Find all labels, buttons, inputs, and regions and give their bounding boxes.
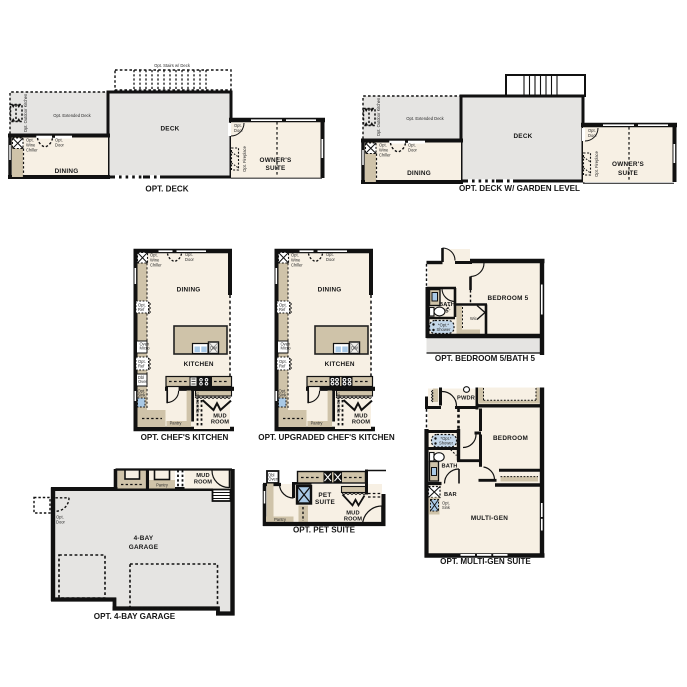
svg-text:Shower: Shower [439,441,454,446]
svg-text:Chiller: Chiller [150,263,162,268]
svg-text:Shower: Shower [437,327,452,332]
svg-text:Ref: Ref [138,364,145,369]
svg-text:Opt. Extended Deck: Opt. Extended Deck [53,113,91,118]
svg-text:KITCHEN: KITCHEN [325,361,355,368]
svg-text:OPT. DECK: OPT. DECK [145,184,188,193]
svg-text:BATH: BATH [442,464,458,470]
svg-text:Chiller: Chiller [26,148,38,153]
svg-text:Opt. Bench: Opt. Bench [336,392,341,413]
svg-text:OWNER'S: OWNER'S [612,161,645,168]
svg-text:ROOM: ROOM [352,419,370,425]
svg-text:DINING: DINING [55,168,79,175]
svg-text:MULTI-GEN: MULTI-GEN [471,515,508,522]
svg-text:Opt. Extended Deck: Opt. Extended Deck [406,116,444,121]
svg-text:DW: DW [351,346,358,351]
svg-text:GARAGE: GARAGE [129,544,159,551]
svg-text:Door: Door [588,133,598,138]
svg-text:MUD: MUD [196,473,209,479]
svg-text:OPT. PET SUITE: OPT. PET SUITE [293,526,356,535]
svg-text:OPT. CHEF'S KITCHEN: OPT. CHEF'S KITCHEN [141,433,229,442]
svg-text:Door: Door [185,257,195,262]
svg-text:DECK: DECK [513,133,532,140]
svg-text:Sink: Sink [279,393,288,398]
svg-text:Sink: Sink [138,393,147,398]
svg-text:OPT. UPGRADED CHEF'S KITCHEN: OPT. UPGRADED CHEF'S KITCHEN [258,433,395,442]
svg-text:BAR: BAR [444,492,457,498]
svg-text:Micro: Micro [281,346,292,351]
svg-text:DINING: DINING [318,287,342,294]
svg-text:Pantry: Pantry [274,517,287,522]
svg-text:SUITE: SUITE [618,170,639,177]
svg-text:BEDROOM 5: BEDROOM 5 [488,295,529,302]
svg-text:Pantry: Pantry [311,420,324,425]
svg-text:SUITE: SUITE [315,499,336,506]
svg-text:Opt. Fireplace: Opt. Fireplace [242,145,247,171]
svg-text:BEDROOM: BEDROOM [493,435,528,442]
svg-text:Oven: Oven [268,476,279,481]
svg-text:ROOM: ROOM [194,480,212,486]
svg-text:Door: Door [234,128,244,133]
svg-text:DECK: DECK [160,126,179,133]
svg-text:OPT. BEDROOM 5/BATH 5: OPT. BEDROOM 5/BATH 5 [435,354,536,363]
svg-text:SUITE: SUITE [265,165,286,172]
svg-text:Door: Door [408,148,418,153]
svg-text:Sink: Sink [442,505,451,510]
svg-text:OWNER'S: OWNER'S [259,157,292,164]
svg-text:Pantry: Pantry [170,420,183,425]
svg-text:Ref: Ref [138,307,145,312]
svg-text:Chiller: Chiller [379,153,391,158]
svg-text:5: 5 [445,309,448,315]
svg-text:Opt. Stairs w/ Deck: Opt. Stairs w/ Deck [154,63,191,68]
svg-text:ROOM: ROOM [344,517,362,523]
svg-text:Opt. Outdoor Kitchen: Opt. Outdoor Kitchen [376,97,381,136]
svg-text:Ref: Ref [279,364,286,369]
svg-text:DINING: DINING [177,287,201,294]
svg-text:KITCHEN: KITCHEN [184,361,214,368]
svg-text:DINING: DINING [407,170,431,177]
svg-text:Oven: Oven [138,379,149,384]
svg-text:ROOM: ROOM [211,419,229,425]
svg-text:OPT. 4-BAY GARAGE: OPT. 4-BAY GARAGE [94,612,176,621]
svg-text:PWDR: PWDR [457,396,475,402]
svg-text:Chiller: Chiller [291,263,303,268]
svg-text:Pantry: Pantry [156,483,169,488]
svg-text:Door: Door [55,143,65,148]
svg-text:Ref: Ref [279,307,286,312]
svg-text:Wic: Wic [470,316,477,321]
svg-text:Door: Door [326,257,336,262]
svg-text:Micro: Micro [140,346,151,351]
svg-text:Opt. Bench: Opt. Bench [195,392,200,413]
svg-text:Opt. Fireplace: Opt. Fireplace [594,150,599,176]
svg-text:4-BAY: 4-BAY [134,535,154,542]
svg-text:OPT. MULTI-GEN SUITE: OPT. MULTI-GEN SUITE [440,557,531,566]
svg-text:DW: DW [210,346,217,351]
svg-text:PET: PET [318,492,331,499]
svg-text:OPT. DECK W/ GARDEN LEVEL: OPT. DECK W/ GARDEN LEVEL [459,184,580,193]
svg-text:Opt. Outdoor Kitchen: Opt. Outdoor Kitchen [23,93,28,132]
svg-text:Door: Door [56,520,66,525]
